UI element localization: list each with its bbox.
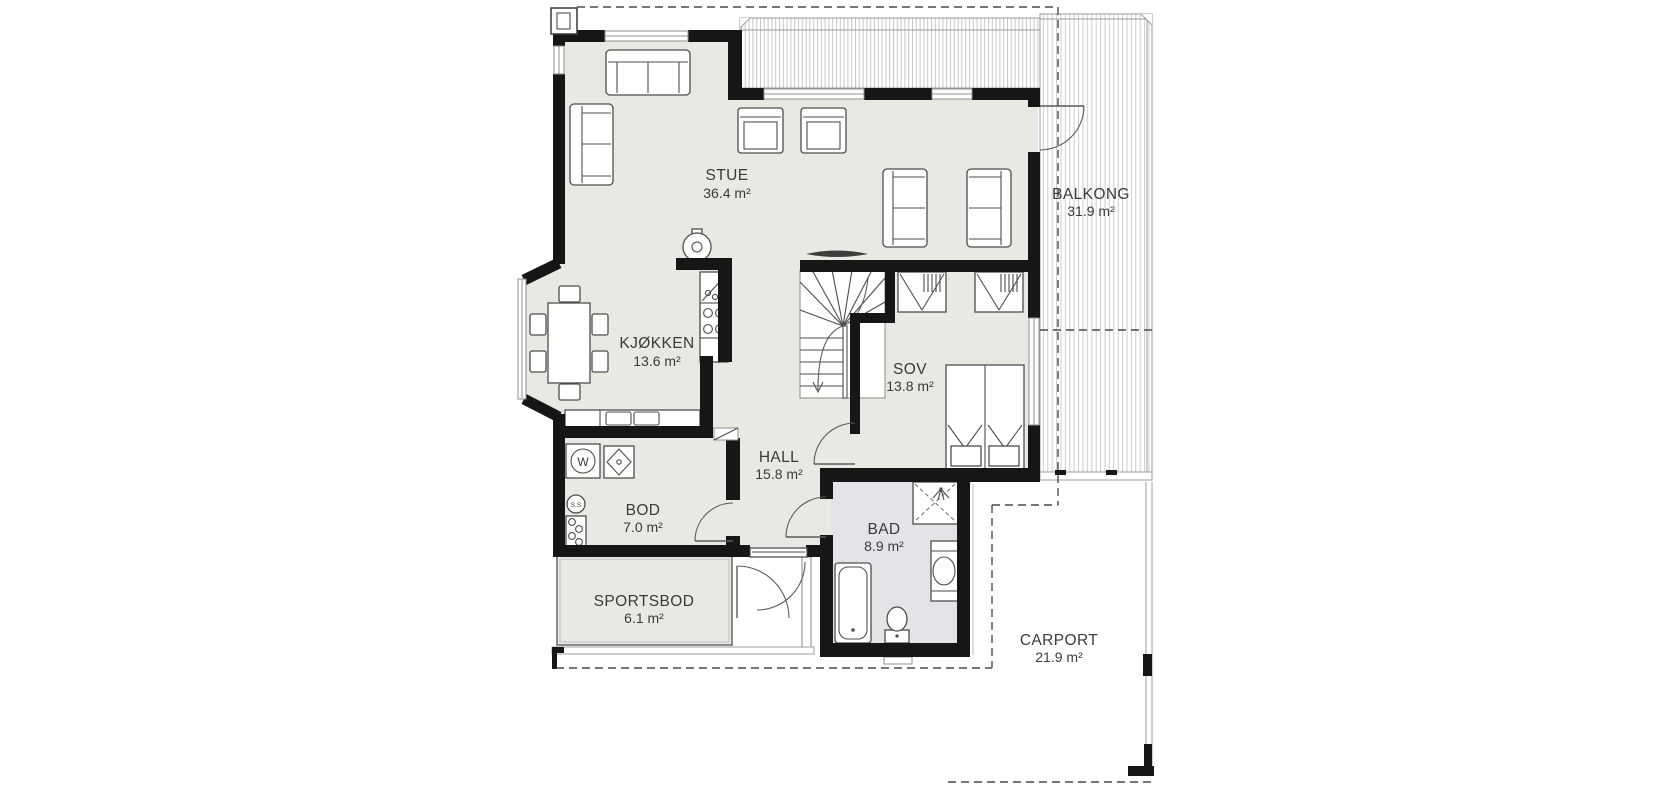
carport-structure bbox=[973, 482, 1154, 776]
armchair-icon bbox=[738, 108, 783, 153]
shower-icon bbox=[913, 482, 958, 524]
washer-icon: W bbox=[566, 444, 600, 478]
room-area: 31.9 m² bbox=[1067, 203, 1115, 219]
room-area: 8.9 m² bbox=[864, 538, 904, 554]
room-name: BOD bbox=[626, 502, 661, 519]
kitchen-hatch bbox=[714, 428, 738, 440]
floor-drain-label: S.S bbox=[571, 502, 582, 509]
room-name: SOV bbox=[893, 361, 927, 378]
room-name: KJØKKEN bbox=[619, 335, 694, 352]
room-area: 13.6 m² bbox=[633, 353, 681, 369]
room-name: STUE bbox=[706, 167, 749, 184]
floorplan-svg: W S.S bbox=[0, 0, 1670, 800]
wardrobe-icon bbox=[975, 272, 1023, 312]
room-area: 7.0 m² bbox=[623, 519, 663, 535]
floor-drain-icon: S.S bbox=[567, 495, 585, 513]
bathroom-sink-icon bbox=[931, 541, 958, 601]
chimney-icon bbox=[551, 8, 577, 34]
sportsbod-structure bbox=[552, 556, 814, 669]
room-area: 15.8 m² bbox=[755, 466, 803, 482]
carport-post bbox=[1143, 654, 1152, 676]
room-area: 6.1 m² bbox=[624, 610, 664, 626]
roof-strip bbox=[740, 18, 1040, 88]
room-area: 21.9 m² bbox=[1035, 649, 1083, 665]
room-name: BALKONG bbox=[1052, 186, 1130, 203]
washer-label: W bbox=[577, 455, 589, 469]
sofa-icon bbox=[967, 169, 1011, 247]
floorplan-page: W S.S bbox=[0, 0, 1670, 800]
utility-sink-icon bbox=[566, 516, 586, 546]
toilet-icon bbox=[885, 607, 909, 643]
bath-threshold bbox=[884, 657, 912, 664]
sofa-icon bbox=[606, 50, 690, 95]
bathtub-icon bbox=[835, 563, 871, 643]
kitchen-sink-counter-icon bbox=[565, 410, 700, 427]
dryer-icon bbox=[604, 446, 634, 478]
room-area: 13.8 m² bbox=[886, 378, 934, 394]
room-label-bad: BAD 8.9 m² bbox=[864, 521, 904, 554]
room-name: CARPORT bbox=[1020, 632, 1098, 649]
entrance-door bbox=[750, 548, 807, 610]
room-label-hall: HALL 15.8 m² bbox=[755, 449, 803, 482]
stairs-icon bbox=[800, 251, 885, 399]
armchair-icon bbox=[801, 108, 846, 153]
wardrobe-icon bbox=[898, 272, 946, 312]
room-name: BAD bbox=[867, 521, 900, 538]
balcony-deck bbox=[1040, 14, 1152, 480]
bed-icon bbox=[946, 365, 1024, 469]
sofa-icon bbox=[570, 104, 613, 185]
room-label-sov: SOV 13.8 m² bbox=[886, 361, 934, 394]
room-label-carport: CARPORT 21.9 m² bbox=[1020, 632, 1098, 665]
sofa-icon bbox=[883, 169, 927, 247]
room-label-bod: BOD 7.0 m² bbox=[623, 502, 663, 535]
room-name: SPORTSBOD bbox=[594, 593, 695, 610]
room-area: 36.4 m² bbox=[703, 185, 751, 201]
room-name: HALL bbox=[759, 449, 799, 466]
